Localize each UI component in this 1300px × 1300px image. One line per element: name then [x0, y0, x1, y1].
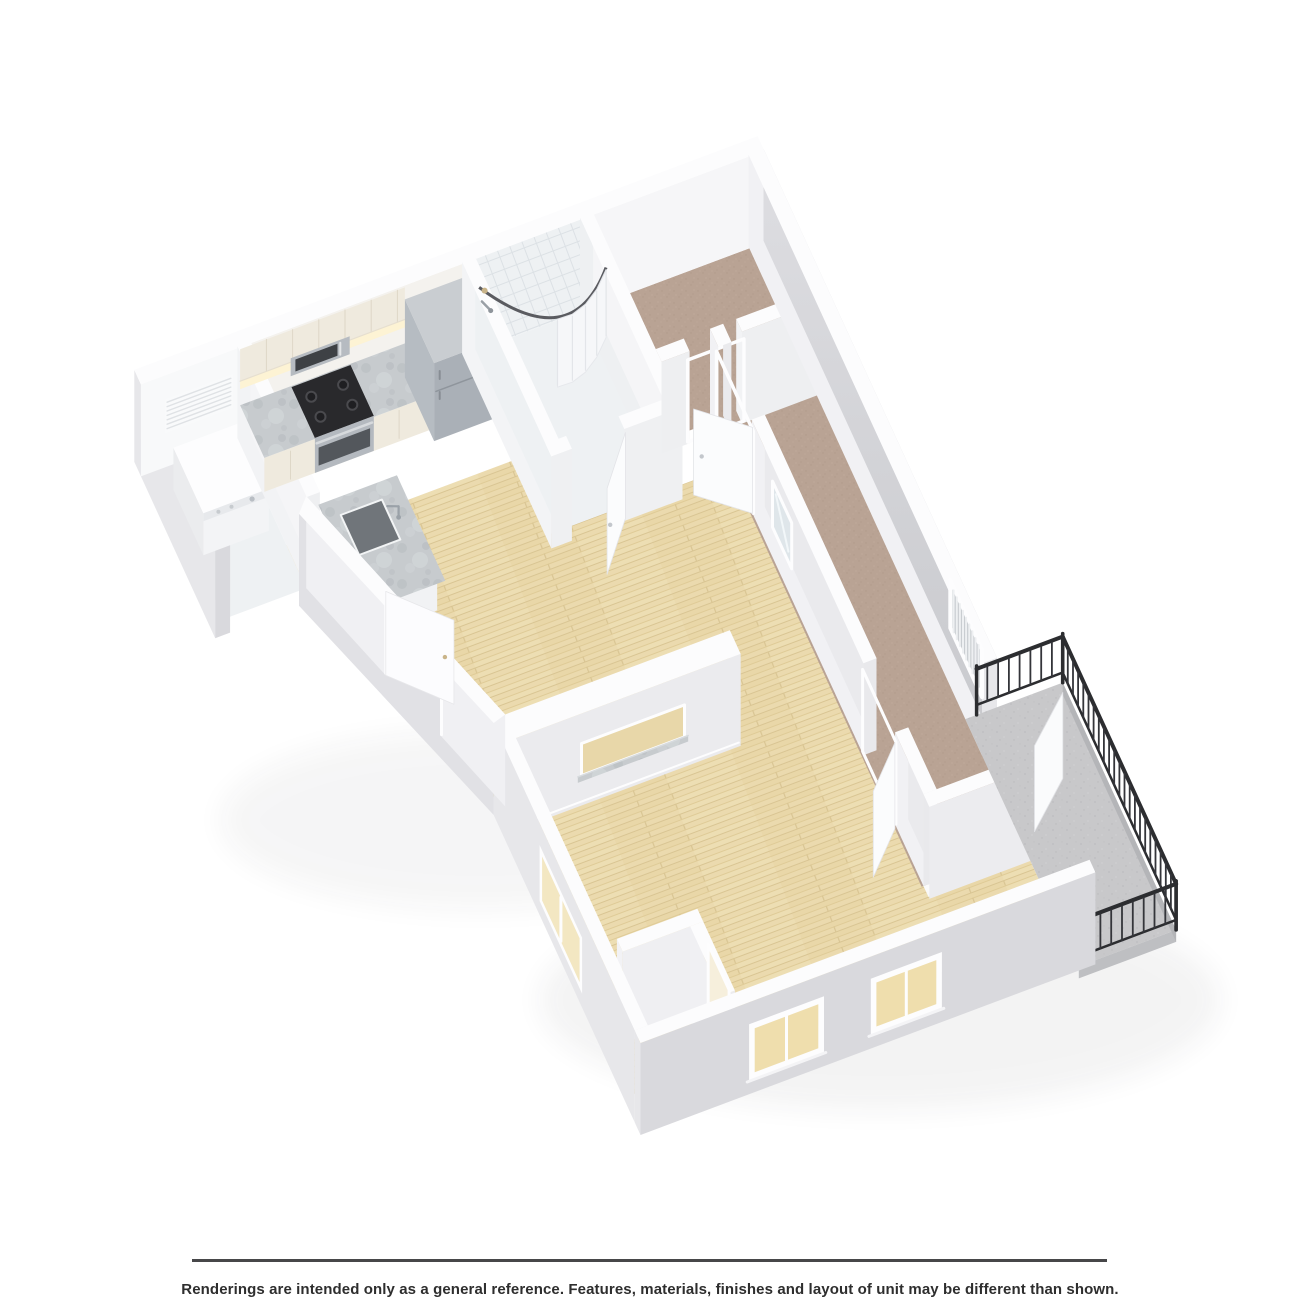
- footer-divider-line: [192, 1259, 1107, 1262]
- floorplan-3d-rendering: [0, 0, 1300, 1300]
- bedroom-door: [694, 409, 753, 513]
- floorplan-scene: [0, 0, 1300, 1300]
- disclaimer-text: Renderings are intended only as a genera…: [0, 1281, 1300, 1298]
